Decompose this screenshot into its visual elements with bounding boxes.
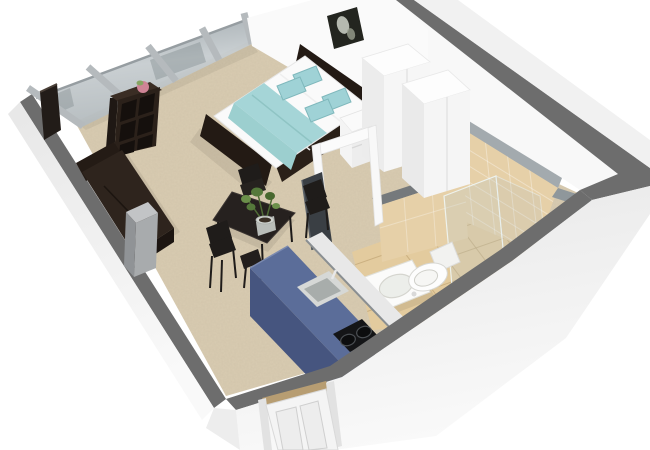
plant-leaves-4 [272,203,280,209]
plant-leaves-1 [241,195,251,203]
floorplan-stage [0,0,650,450]
side-stand-side [124,212,136,277]
plant-pot-soil [259,218,271,223]
side-stand-front [134,213,158,277]
floorplan-render [0,0,650,450]
sw-corner-outer [206,408,240,450]
washbasin-faucet [412,292,417,297]
plant-leaves-2 [251,188,263,197]
decor-ball-leaf [137,81,144,86]
plant-leaves-3 [265,192,275,200]
plant-leaves-5 [247,204,256,211]
wardrobe-front-side [402,84,424,198]
